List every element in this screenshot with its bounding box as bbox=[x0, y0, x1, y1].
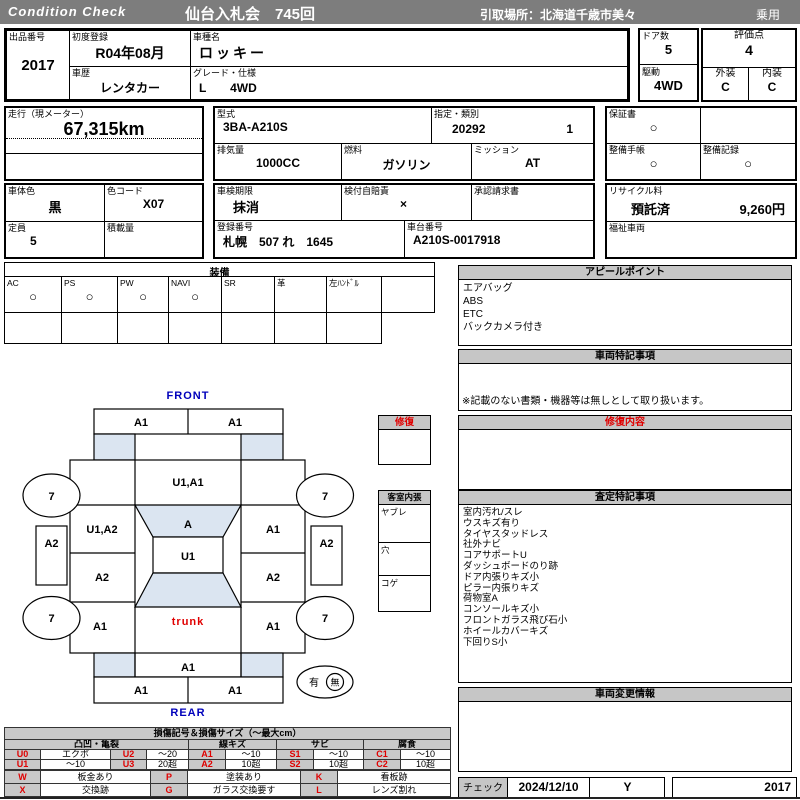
damage-diagram: FRONT REAR A1 A1 U1,A1 A U1 U1,A2 A2 A1 … bbox=[0, 388, 370, 725]
interior-grade-label: 内装 bbox=[749, 68, 795, 80]
model-value: ロッキー bbox=[191, 43, 627, 63]
interior-grade-cell: 内装 C bbox=[749, 68, 795, 100]
damage-size-table: 損傷記号＆損傷サイズ（～最大cm） 凸凹・亀裂 線キズ サビ 腐食 U0 エクボ… bbox=[4, 727, 451, 770]
fuel-value: ガソリン bbox=[342, 156, 471, 173]
appeal-points-section: アピールポイント エアバッグ ABS ETC バックカメラ付き bbox=[458, 265, 792, 346]
maintenance-record-mark: ○ bbox=[701, 156, 795, 171]
mark-left-center: A2 bbox=[95, 572, 109, 584]
registration-box: 車検期限 抹消 検付自賠責 × 承認請求書 登録番号 札幌 507 れ 1645… bbox=[213, 183, 595, 259]
legend-value: ～10 bbox=[226, 750, 277, 760]
appeal-points-title: アピールポイント bbox=[459, 266, 791, 280]
tire-mark-rear-right: 7 bbox=[322, 613, 328, 625]
legend-value: 10超 bbox=[314, 760, 364, 770]
maintenance-book-label: 整備手帳 bbox=[607, 144, 700, 156]
capacity-label: 定員 bbox=[6, 222, 104, 234]
mileage-box: 走行（現メーター） 67,315km bbox=[4, 106, 204, 181]
equipment-label: PW bbox=[118, 277, 168, 289]
score-label: 評価点 bbox=[703, 30, 795, 42]
mileage-extra-row bbox=[6, 139, 202, 154]
mark-right-side: A2 bbox=[319, 538, 333, 550]
check-date-value: 2024/12/10 bbox=[508, 778, 590, 797]
assessment-notes-title: 査定特記事項 bbox=[459, 491, 791, 505]
tire-mark-rear-left: 7 bbox=[48, 613, 54, 625]
class-sub-value: 1 bbox=[566, 122, 573, 136]
legend-code: W bbox=[5, 771, 41, 784]
presence-no-label: 無 bbox=[330, 677, 339, 688]
drive-cell: 駆動 4WD bbox=[640, 66, 697, 100]
inspection-cell: 車検期限 抹消 bbox=[215, 185, 342, 221]
equipment-label: NAVI bbox=[169, 277, 221, 289]
legend-code: K bbox=[301, 771, 338, 784]
tire-mark-front-left: 7 bbox=[48, 491, 54, 503]
appeal-item: ETC bbox=[463, 308, 787, 321]
legend-code: L bbox=[301, 784, 338, 797]
equipment-empty-cell bbox=[168, 312, 222, 344]
maintenance-record-cell: 整備記録 ○ bbox=[701, 144, 795, 179]
rear-label: REAR bbox=[170, 707, 205, 719]
approval-label: 承認請求書 bbox=[472, 185, 593, 197]
repair-mark-box: 修復 bbox=[378, 415, 431, 465]
assessment-item: タイヤスタッドレス bbox=[463, 530, 787, 541]
exterior-grade-cell: 外装 C bbox=[703, 68, 749, 100]
model-label: 車種名 bbox=[191, 31, 627, 43]
warranty-cell: 保証書 ○ bbox=[607, 108, 701, 144]
legend-value: エクボ bbox=[41, 750, 111, 760]
type-cell: 型式 3BA-A210S bbox=[215, 108, 432, 144]
legend-code: C2 bbox=[364, 760, 401, 770]
recycle-fee-value: 9,260円 bbox=[739, 199, 785, 218]
check-number-box: 2017 bbox=[672, 777, 797, 798]
welfare-cell: 福祉車両 bbox=[607, 222, 795, 257]
front-label: FRONT bbox=[167, 390, 210, 402]
registration-number-value: 札幌 507 れ 1645 bbox=[215, 233, 404, 250]
mark-front-bumper-right: A1 bbox=[228, 417, 242, 429]
mileage-value: 67,315km bbox=[6, 120, 202, 139]
documents-empty-cell bbox=[701, 108, 795, 144]
equipment-label: 革 bbox=[275, 277, 326, 289]
registration-number-cell: 登録番号 札幌 507 れ 1645 bbox=[215, 221, 405, 257]
equipment-label: SR bbox=[222, 277, 274, 289]
maintenance-book-cell: 整備手帳 ○ bbox=[607, 144, 701, 179]
assessment-item: ウスキズ有り bbox=[463, 519, 787, 530]
interior-grade-value: C bbox=[749, 80, 795, 94]
legend-value: 交換跡 bbox=[41, 784, 151, 797]
type-box: 型式 3BA-A210S 指定・類別 20292 1 排気量 1000CC 燃料… bbox=[213, 106, 595, 181]
history-value: レンタカー bbox=[70, 79, 190, 96]
assessment-notes-section: 査定特記事項 室内汚れ/スレ ウスキズ有り タイヤスタッドレス 社外ナビ コアサ… bbox=[458, 490, 792, 683]
basic-info-box: 出品番号 2017 初度登録 R04年08月 車歴 レンタカー 車種名 ロッキー… bbox=[4, 28, 630, 102]
body-color-label: 車体色 bbox=[6, 185, 104, 197]
equipment-empty-cell bbox=[326, 312, 382, 344]
legend-group-scratch: 線キズ bbox=[189, 740, 277, 750]
equipment-cell-navi: NAVI○ bbox=[168, 276, 222, 313]
legend-code: U3 bbox=[111, 760, 147, 770]
color-box: 車体色 黒 色コード X07 定員 5 積載量 bbox=[4, 183, 204, 259]
inspection-label: 車検期限 bbox=[215, 185, 341, 197]
damage-code-table: W 板金あり P 塗装あり K 看板跡 X 交換跡 G ガラス交換要す L レン… bbox=[4, 770, 451, 797]
equipment-label: 左ﾊﾝﾄﾞﾙ bbox=[327, 277, 381, 289]
legend-value: 看板跡 bbox=[338, 771, 451, 784]
color-code-value: X07 bbox=[105, 197, 202, 211]
class-label: 指定・類別 bbox=[432, 108, 593, 120]
first-registration-label: 初度登録 bbox=[70, 31, 190, 43]
legend-value: 塗装あり bbox=[188, 771, 301, 784]
displacement-value: 1000CC bbox=[215, 156, 341, 170]
equipment-label: PS bbox=[62, 277, 117, 289]
cabin-row-hole: 穴 bbox=[379, 543, 430, 576]
legend-code: G bbox=[151, 784, 188, 797]
maintenance-book-mark: ○ bbox=[607, 156, 700, 171]
repair-details-section: 修復内容 bbox=[458, 415, 792, 490]
grade-value: L 4WD bbox=[191, 79, 627, 96]
legend-title: 損傷記号＆損傷サイズ（～最大cm） bbox=[5, 728, 451, 740]
score-box: 評価点 4 外装 C 内装 C bbox=[701, 28, 797, 102]
displacement-label: 排気量 bbox=[215, 144, 341, 156]
legend-code: U2 bbox=[111, 750, 147, 760]
brand-logo: Condition Check bbox=[8, 4, 126, 19]
history-label: 車歴 bbox=[70, 67, 190, 79]
equipment-label: AC bbox=[5, 277, 61, 289]
drive-value: 4WD bbox=[640, 78, 697, 93]
exterior-grade-value: C bbox=[703, 80, 748, 94]
doors-drive-box: ドア数 5 駆動 4WD bbox=[638, 28, 699, 102]
equipment-cell-pw: PW○ bbox=[117, 276, 169, 313]
vehicle-notes-disclaimer: ※記載のない書類・機器等は無しとして取り扱います。 bbox=[462, 392, 709, 407]
legend-value: ガラス交換要す bbox=[188, 784, 301, 797]
mark-windshield: A bbox=[184, 519, 192, 531]
capacity-value: 5 bbox=[6, 234, 104, 248]
equipment-mark: ○ bbox=[118, 289, 168, 304]
legend-value: ～10 bbox=[314, 750, 364, 760]
check-inspector-value: Y bbox=[591, 778, 664, 797]
legend-value: レンズ割れ bbox=[338, 784, 451, 797]
legend-value: ～10 bbox=[401, 750, 451, 760]
mark-left-rear-fender: A1 bbox=[93, 621, 107, 633]
mileage-cell: 走行（現メーター） 67,315km bbox=[6, 108, 202, 139]
insurance-label: 検付自賠責 bbox=[342, 185, 471, 197]
cabin-row-tear: ヤブレ bbox=[379, 505, 430, 543]
bottom-rule bbox=[0, 797, 800, 799]
legend-code: A2 bbox=[189, 760, 226, 770]
legend-code: P bbox=[151, 771, 188, 784]
mark-right-rear-fender: A1 bbox=[266, 621, 280, 633]
model-cell: 車種名 ロッキー bbox=[190, 30, 628, 67]
vin-cell: 車台番号 A210S-0017918 bbox=[405, 221, 593, 257]
appeal-item: エアバッグ bbox=[463, 282, 787, 295]
vin-label: 車台番号 bbox=[405, 221, 593, 233]
legend-value: ～10 bbox=[41, 760, 111, 770]
legend-value: 板金あり bbox=[41, 771, 151, 784]
maintenance-record-label: 整備記録 bbox=[701, 144, 795, 156]
equipment-mark: ○ bbox=[62, 289, 117, 304]
first-registration-value: R04年08月 bbox=[70, 43, 190, 63]
cabin-row-burn: コゲ bbox=[379, 576, 430, 611]
presence-yes-label: 有 bbox=[309, 676, 319, 689]
capacity-cell: 定員 5 bbox=[6, 222, 105, 257]
legend-value: 10超 bbox=[401, 760, 451, 770]
lot-number-cell: 出品番号 2017 bbox=[6, 30, 70, 100]
legend-code: U0 bbox=[5, 750, 41, 760]
transmission-value: AT bbox=[472, 156, 593, 170]
recycle-fee-label: リサイクル料 bbox=[607, 185, 795, 197]
body-color-value: 黒 bbox=[6, 197, 104, 216]
assessment-item: ホイールカバーキズ bbox=[463, 627, 787, 638]
mark-left-side: A2 bbox=[44, 538, 58, 550]
grade-label: グレード・仕様 bbox=[191, 67, 627, 79]
mark-roof: U1 bbox=[181, 551, 195, 563]
equipment-cell-ps: PS○ bbox=[61, 276, 118, 313]
legend-code: X bbox=[5, 784, 41, 797]
inspection-value: 抹消 bbox=[215, 197, 341, 216]
displacement-cell: 排気量 1000CC bbox=[215, 144, 342, 179]
equipment-empty-cell bbox=[4, 312, 62, 344]
assessment-item: ドア内張りキズ小 bbox=[463, 573, 787, 584]
fuel-label: 燃料 bbox=[342, 144, 471, 156]
legend-group-rust: サビ bbox=[277, 740, 364, 750]
legend-value: ～20 bbox=[147, 750, 189, 760]
assessment-item: 下回りS小 bbox=[463, 638, 787, 649]
equipment-empty-cell bbox=[221, 312, 275, 344]
welfare-label: 福祉車両 bbox=[607, 222, 795, 234]
documents-box: 保証書 ○ 整備手帳 ○ 整備記録 ○ bbox=[605, 106, 797, 181]
mark-right-center: A2 bbox=[266, 572, 280, 584]
legend-group-dent: 凸凹・亀裂 bbox=[5, 740, 189, 750]
vehicle-class: 乗用 bbox=[756, 6, 780, 23]
change-info-section: 車両変更情報 bbox=[458, 687, 792, 772]
fuel-cell: 燃料 ガソリン bbox=[342, 144, 472, 179]
legend-value: 10超 bbox=[226, 760, 277, 770]
repair-mark-title: 修復 bbox=[379, 416, 430, 430]
mark-right-front-fender: A1 bbox=[266, 524, 280, 536]
vin-value: A210S-0017918 bbox=[405, 233, 593, 247]
score-value: 4 bbox=[703, 42, 795, 58]
legend-code: S1 bbox=[277, 750, 314, 760]
warranty-label: 保証書 bbox=[607, 108, 700, 120]
cabin-lining-box: 客室内張 ヤブレ 穴 コゲ bbox=[378, 490, 431, 612]
check-lot-number: 2017 bbox=[764, 778, 791, 797]
equipment-mark: ○ bbox=[169, 289, 221, 304]
repair-details-title: 修復内容 bbox=[459, 416, 791, 430]
transmission-cell: ミッション AT bbox=[472, 144, 593, 179]
change-info-title: 車両変更情報 bbox=[459, 688, 791, 702]
check-label: チェック bbox=[463, 783, 503, 794]
pickup-location: 引取場所：北海道千歳市美々 bbox=[480, 6, 636, 23]
registration-number-label: 登録番号 bbox=[215, 221, 404, 233]
mark-hood: U1,A1 bbox=[172, 477, 203, 489]
lot-number-label: 出品番号 bbox=[7, 31, 69, 43]
legend-value: 20超 bbox=[147, 760, 189, 770]
transmission-label: ミッション bbox=[472, 144, 593, 156]
insurance-mark: × bbox=[342, 197, 471, 211]
exterior-grade-label: 外装 bbox=[703, 68, 748, 80]
assessment-item: ピラー内張りキズ bbox=[463, 584, 787, 595]
check-date-box: 2024/12/10 Y bbox=[507, 777, 665, 798]
color-code-label: 色コード bbox=[105, 185, 202, 197]
doors-value: 5 bbox=[640, 42, 697, 57]
equipment-cell-extra bbox=[381, 276, 435, 313]
insurance-cell: 検付自賠責 × bbox=[342, 185, 472, 221]
damage-legend: 損傷記号＆損傷サイズ（～最大cm） 凸凹・亀裂 線キズ サビ 腐食 U0 エクボ… bbox=[4, 727, 451, 770]
doors-cell: ドア数 5 bbox=[640, 30, 697, 65]
equipment-mark: ○ bbox=[5, 289, 61, 304]
mark-left-front-fender: U1,A2 bbox=[86, 524, 117, 536]
trunk-label: trunk bbox=[172, 616, 205, 628]
recycle-box: リサイクル料 預託済 9,260円 福祉車両 bbox=[605, 183, 797, 259]
vehicle-notes-title: 車両特記事項 bbox=[459, 350, 791, 364]
type-label: 型式 bbox=[215, 108, 431, 120]
title-bar: Condition Check 仙台入札会 745回 引取場所：北海道千歳市美々… bbox=[0, 0, 800, 24]
first-registration-cell: 初度登録 R04年08月 bbox=[69, 30, 191, 67]
equipment-cell-lhd: 左ﾊﾝﾄﾞﾙ bbox=[326, 276, 382, 313]
score-cell: 評価点 4 bbox=[703, 30, 795, 68]
appeal-item: ABS bbox=[463, 295, 787, 308]
equipment-empty-cell bbox=[274, 312, 327, 344]
mark-front-bumper-left: A1 bbox=[134, 417, 148, 429]
recycle-status-value: 預託済 bbox=[631, 199, 670, 218]
mark-rear-bumper-right: A1 bbox=[228, 685, 242, 697]
equipment-header: 装備 bbox=[4, 262, 435, 277]
equipment-cell-ac: AC○ bbox=[4, 276, 62, 313]
type-value: 3BA-A210S bbox=[215, 120, 431, 134]
auction-title: 仙台入札会 745回 bbox=[185, 3, 315, 24]
legend-code: A1 bbox=[189, 750, 226, 760]
grade-cell: グレード・仕様 L 4WD bbox=[190, 66, 628, 100]
legend-code: C1 bbox=[364, 750, 401, 760]
doors-label: ドア数 bbox=[640, 30, 697, 42]
appeal-item: バックカメラ付き bbox=[463, 321, 787, 334]
equipment-empty-cell bbox=[117, 312, 169, 344]
color-code-cell: 色コード X07 bbox=[105, 185, 202, 222]
legend-code: S2 bbox=[277, 760, 314, 770]
equipment-cell-sr: SR bbox=[221, 276, 275, 313]
equipment-cell-leather: 革 bbox=[274, 276, 327, 313]
warranty-mark: ○ bbox=[607, 120, 700, 135]
approval-cell: 承認請求書 bbox=[472, 185, 593, 221]
mark-rear-gate: A1 bbox=[181, 662, 195, 674]
history-cell: 車歴 レンタカー bbox=[69, 66, 191, 100]
tire-mark-front-right: 7 bbox=[322, 491, 328, 503]
class-number-value: 20292 bbox=[452, 122, 485, 136]
cabin-lining-title: 客室内張 bbox=[379, 491, 430, 505]
class-cell: 指定・類別 20292 1 bbox=[432, 108, 593, 144]
lot-number-value: 2017 bbox=[7, 57, 69, 74]
drive-label: 駆動 bbox=[640, 66, 697, 78]
load-cell: 積載量 bbox=[105, 222, 202, 257]
body-color-cell: 車体色 黒 bbox=[6, 185, 105, 222]
legend-code: U1 bbox=[5, 760, 41, 770]
damage-code-legend: W 板金あり P 塗装あり K 看板跡 X 交換跡 G ガラス交換要す L レン… bbox=[4, 770, 451, 797]
load-label: 積載量 bbox=[105, 222, 202, 234]
legend-group-corrosion: 腐食 bbox=[364, 740, 451, 750]
equipment-empty-cell bbox=[61, 312, 118, 344]
recycle-fee-cell: リサイクル料 預託済 9,260円 bbox=[607, 185, 795, 222]
check-label-cell: チェック bbox=[458, 777, 508, 798]
vehicle-notes-section: 車両特記事項 ※記載のない書類・機器等は無しとして取り扱います。 bbox=[458, 349, 792, 411]
mark-rear-bumper-left: A1 bbox=[134, 685, 148, 697]
